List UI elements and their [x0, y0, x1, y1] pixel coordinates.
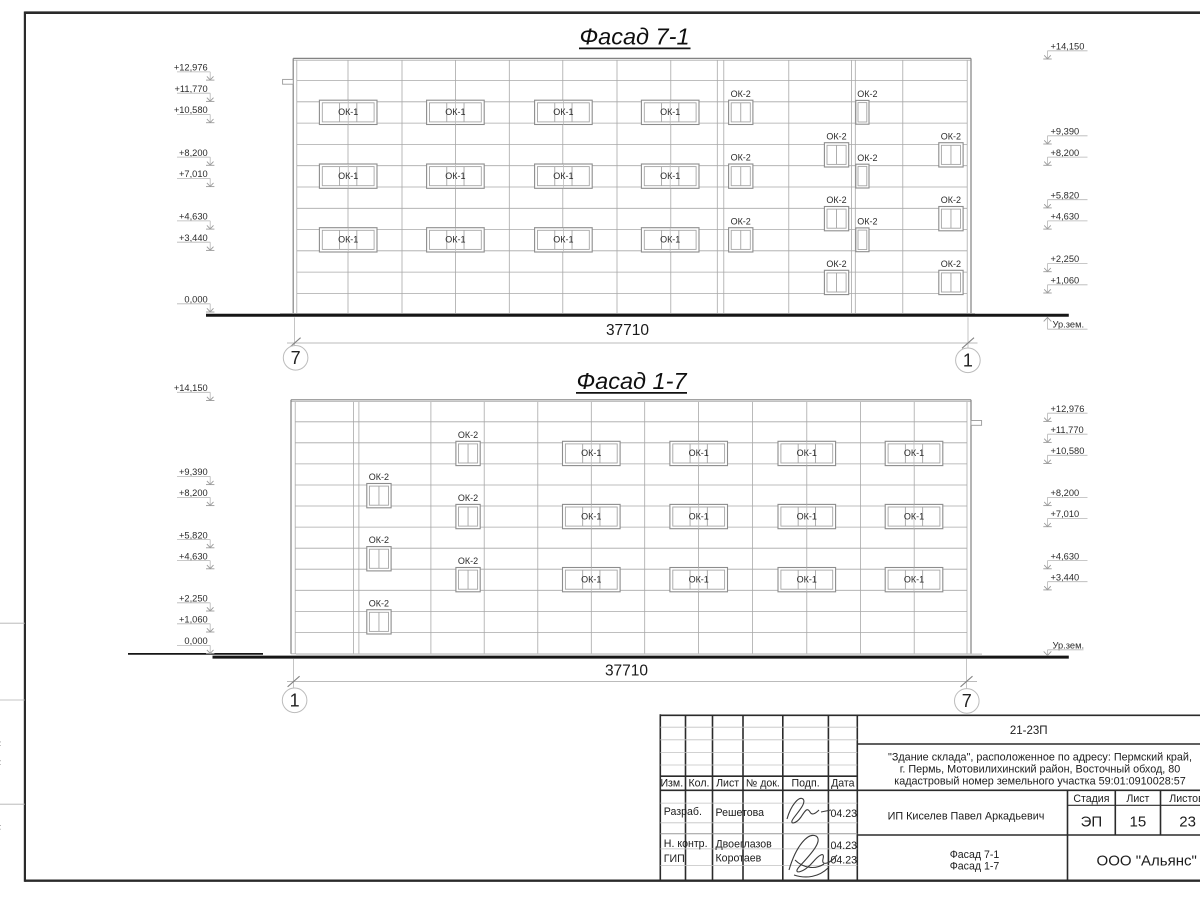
- svg-text:Подп.: Подп.: [792, 778, 820, 790]
- svg-text:ОК-2: ОК-2: [826, 131, 846, 141]
- svg-text:ОК-1: ОК-1: [904, 574, 924, 584]
- svg-text:ОК-2: ОК-2: [458, 556, 478, 566]
- svg-text:ОК-2: ОК-2: [826, 195, 846, 205]
- svg-text:кадастровый номер земельного у: кадастровый номер земельного участка 59:…: [894, 775, 1185, 787]
- svg-text:+9,390: +9,390: [179, 467, 208, 477]
- svg-text:Решетова: Решетова: [716, 807, 765, 819]
- svg-text:+1,060: +1,060: [179, 615, 208, 625]
- svg-text:+8,200: +8,200: [179, 488, 208, 498]
- svg-text:1: 1: [290, 691, 300, 711]
- svg-text:ОК-2: ОК-2: [941, 195, 961, 205]
- svg-text:ОК-1: ОК-1: [338, 171, 358, 181]
- svg-text:ОК-2: ОК-2: [458, 430, 478, 440]
- svg-text:+5,820: +5,820: [179, 530, 208, 540]
- svg-text:Ур.зем.: Ур.зем.: [1053, 640, 1085, 650]
- svg-text:ОК-1: ОК-1: [581, 511, 601, 521]
- svg-text:04.23: 04.23: [831, 840, 858, 852]
- svg-text:0,000: 0,000: [184, 295, 207, 305]
- svg-text:Листов: Листов: [1169, 793, 1200, 805]
- svg-text:+11,770: +11,770: [175, 84, 208, 94]
- svg-text:ОК-1: ОК-1: [689, 574, 709, 584]
- svg-text:23: 23: [1179, 814, 1196, 831]
- svg-text:+10,580: +10,580: [174, 105, 208, 115]
- svg-text:+12,976: +12,976: [1051, 404, 1085, 414]
- svg-text:+3,440: +3,440: [1051, 572, 1080, 582]
- svg-text:1: 1: [963, 351, 973, 371]
- svg-text:7: 7: [291, 348, 301, 368]
- svg-text:+4,630: +4,630: [1051, 551, 1080, 561]
- svg-text:Лист: Лист: [716, 778, 739, 790]
- svg-text:ОК-1: ОК-1: [445, 171, 465, 181]
- svg-text:ОК-2: ОК-2: [941, 259, 961, 269]
- svg-text:ОК-1: ОК-1: [904, 511, 924, 521]
- svg-text:ОК-1: ОК-1: [660, 235, 680, 245]
- svg-text:Фасад 7-1: Фасад 7-1: [579, 24, 689, 50]
- svg-text:Подп. и дата: Подп. и дата: [0, 729, 2, 774]
- svg-text:+7,010: +7,010: [179, 169, 208, 179]
- svg-text:+8,200: +8,200: [1051, 148, 1080, 158]
- svg-text:ОК-2: ОК-2: [857, 89, 877, 99]
- svg-text:ОК-2: ОК-2: [941, 131, 961, 141]
- svg-text:ОК-2: ОК-2: [369, 472, 389, 482]
- svg-text:ГИП: ГИП: [664, 853, 685, 865]
- svg-text:ОК-1: ОК-1: [581, 448, 601, 458]
- svg-text:+11,770: +11,770: [1051, 425, 1084, 435]
- svg-text:ОК-2: ОК-2: [369, 535, 389, 545]
- svg-text:ОК-1: ОК-1: [797, 448, 817, 458]
- svg-text:Кол.: Кол.: [689, 778, 710, 790]
- svg-text:+2,250: +2,250: [179, 594, 208, 604]
- svg-text:+3,440: +3,440: [179, 233, 208, 243]
- svg-text:ОК-1: ОК-1: [553, 107, 573, 117]
- svg-text:ОК-2: ОК-2: [369, 598, 389, 608]
- svg-text:+4,630: +4,630: [179, 212, 208, 222]
- svg-text:0,000: 0,000: [184, 636, 207, 646]
- svg-text:+5,820: +5,820: [1051, 190, 1080, 200]
- svg-text:Ур.зем.: Ур.зем.: [1053, 320, 1085, 330]
- svg-text:37710: 37710: [606, 322, 649, 339]
- svg-text:+4,630: +4,630: [1051, 212, 1080, 222]
- svg-text:Коротаев: Коротаев: [716, 853, 762, 865]
- svg-text:Дата: Дата: [831, 778, 855, 790]
- svg-text:Фасад 1-7: Фасад 1-7: [950, 860, 1000, 872]
- svg-text:04.23: 04.23: [831, 808, 858, 820]
- svg-text:ОК-1: ОК-1: [553, 235, 573, 245]
- svg-text:ОК-1: ОК-1: [797, 574, 817, 584]
- svg-text:ОК-2: ОК-2: [731, 153, 751, 163]
- svg-text:ИП Киселев Павел Аркадьевич: ИП Киселев Павел Аркадьевич: [888, 811, 1045, 823]
- svg-text:04.23: 04.23: [831, 855, 858, 867]
- svg-text:+9,390: +9,390: [1051, 127, 1080, 137]
- svg-text:ОК-2: ОК-2: [458, 493, 478, 503]
- svg-text:ОК-2: ОК-2: [857, 217, 877, 227]
- svg-text:Взам. инв. №: Взам. инв. №: [0, 637, 2, 683]
- svg-text:ОК-1: ОК-1: [797, 511, 817, 521]
- svg-text:ОК-1: ОК-1: [689, 511, 709, 521]
- svg-text:Разраб.: Разраб.: [664, 806, 702, 818]
- svg-text:ОК-1: ОК-1: [581, 574, 601, 584]
- svg-text:ОК-1: ОК-1: [660, 107, 680, 117]
- svg-text:ОК-2: ОК-2: [731, 89, 751, 99]
- svg-text:+8,200: +8,200: [1051, 488, 1080, 498]
- svg-text:Двоеглазов: Двоеглазов: [716, 838, 773, 850]
- svg-text:7: 7: [962, 691, 972, 711]
- svg-text:+12,976: +12,976: [174, 63, 208, 73]
- svg-text:+2,250: +2,250: [1051, 254, 1080, 264]
- svg-text:Изм.: Изм.: [660, 778, 683, 790]
- svg-text:ОК-2: ОК-2: [857, 153, 877, 163]
- svg-text:+8,200: +8,200: [179, 148, 208, 158]
- svg-text:"Здание склада", расположенное: "Здание склада", расположенное по адресу…: [888, 751, 1192, 763]
- svg-text:ОК-1: ОК-1: [445, 107, 465, 117]
- svg-text:+1,060: +1,060: [1051, 276, 1080, 286]
- svg-text:+14,150: +14,150: [1051, 42, 1085, 52]
- svg-text:ОК-1: ОК-1: [445, 235, 465, 245]
- svg-text:21-23П: 21-23П: [1010, 725, 1048, 737]
- svg-text:+7,010: +7,010: [1051, 509, 1080, 519]
- svg-text:№ док.: № док.: [746, 778, 780, 790]
- svg-text:Стадия: Стадия: [1073, 793, 1109, 805]
- svg-text:Н. контр.: Н. контр.: [664, 838, 708, 850]
- svg-text:Фасад 1-7: Фасад 1-7: [576, 368, 687, 394]
- svg-text:ОК-1: ОК-1: [338, 107, 358, 117]
- svg-text:+14,150: +14,150: [174, 383, 208, 393]
- svg-text:ОК-1: ОК-1: [553, 171, 573, 181]
- svg-text:ООО "Альянс": ООО "Альянс": [1097, 853, 1197, 870]
- svg-text:Фасад 7-1: Фасад 7-1: [950, 849, 1000, 861]
- svg-text:ОК-2: ОК-2: [731, 216, 751, 226]
- svg-text:+10,580: +10,580: [1051, 446, 1085, 456]
- svg-text:15: 15: [1130, 814, 1147, 831]
- svg-text:ОК-1: ОК-1: [338, 235, 358, 245]
- svg-text:Лист: Лист: [1126, 793, 1149, 805]
- svg-text:ОК-1: ОК-1: [660, 171, 680, 181]
- svg-text:37710: 37710: [605, 662, 648, 679]
- svg-text:ОК-1: ОК-1: [689, 448, 709, 458]
- svg-text:ОК-2: ОК-2: [826, 259, 846, 269]
- svg-text:ОК-1: ОК-1: [904, 448, 924, 458]
- svg-text:ЭП: ЭП: [1081, 814, 1103, 831]
- svg-text:Инв. № подл.: Инв. № подл.: [0, 819, 2, 866]
- svg-text:г. Пермь, Мотовилихинский райо: г. Пермь, Мотовилихинский район, Восточн…: [900, 763, 1181, 775]
- svg-text:+4,630: +4,630: [179, 551, 208, 561]
